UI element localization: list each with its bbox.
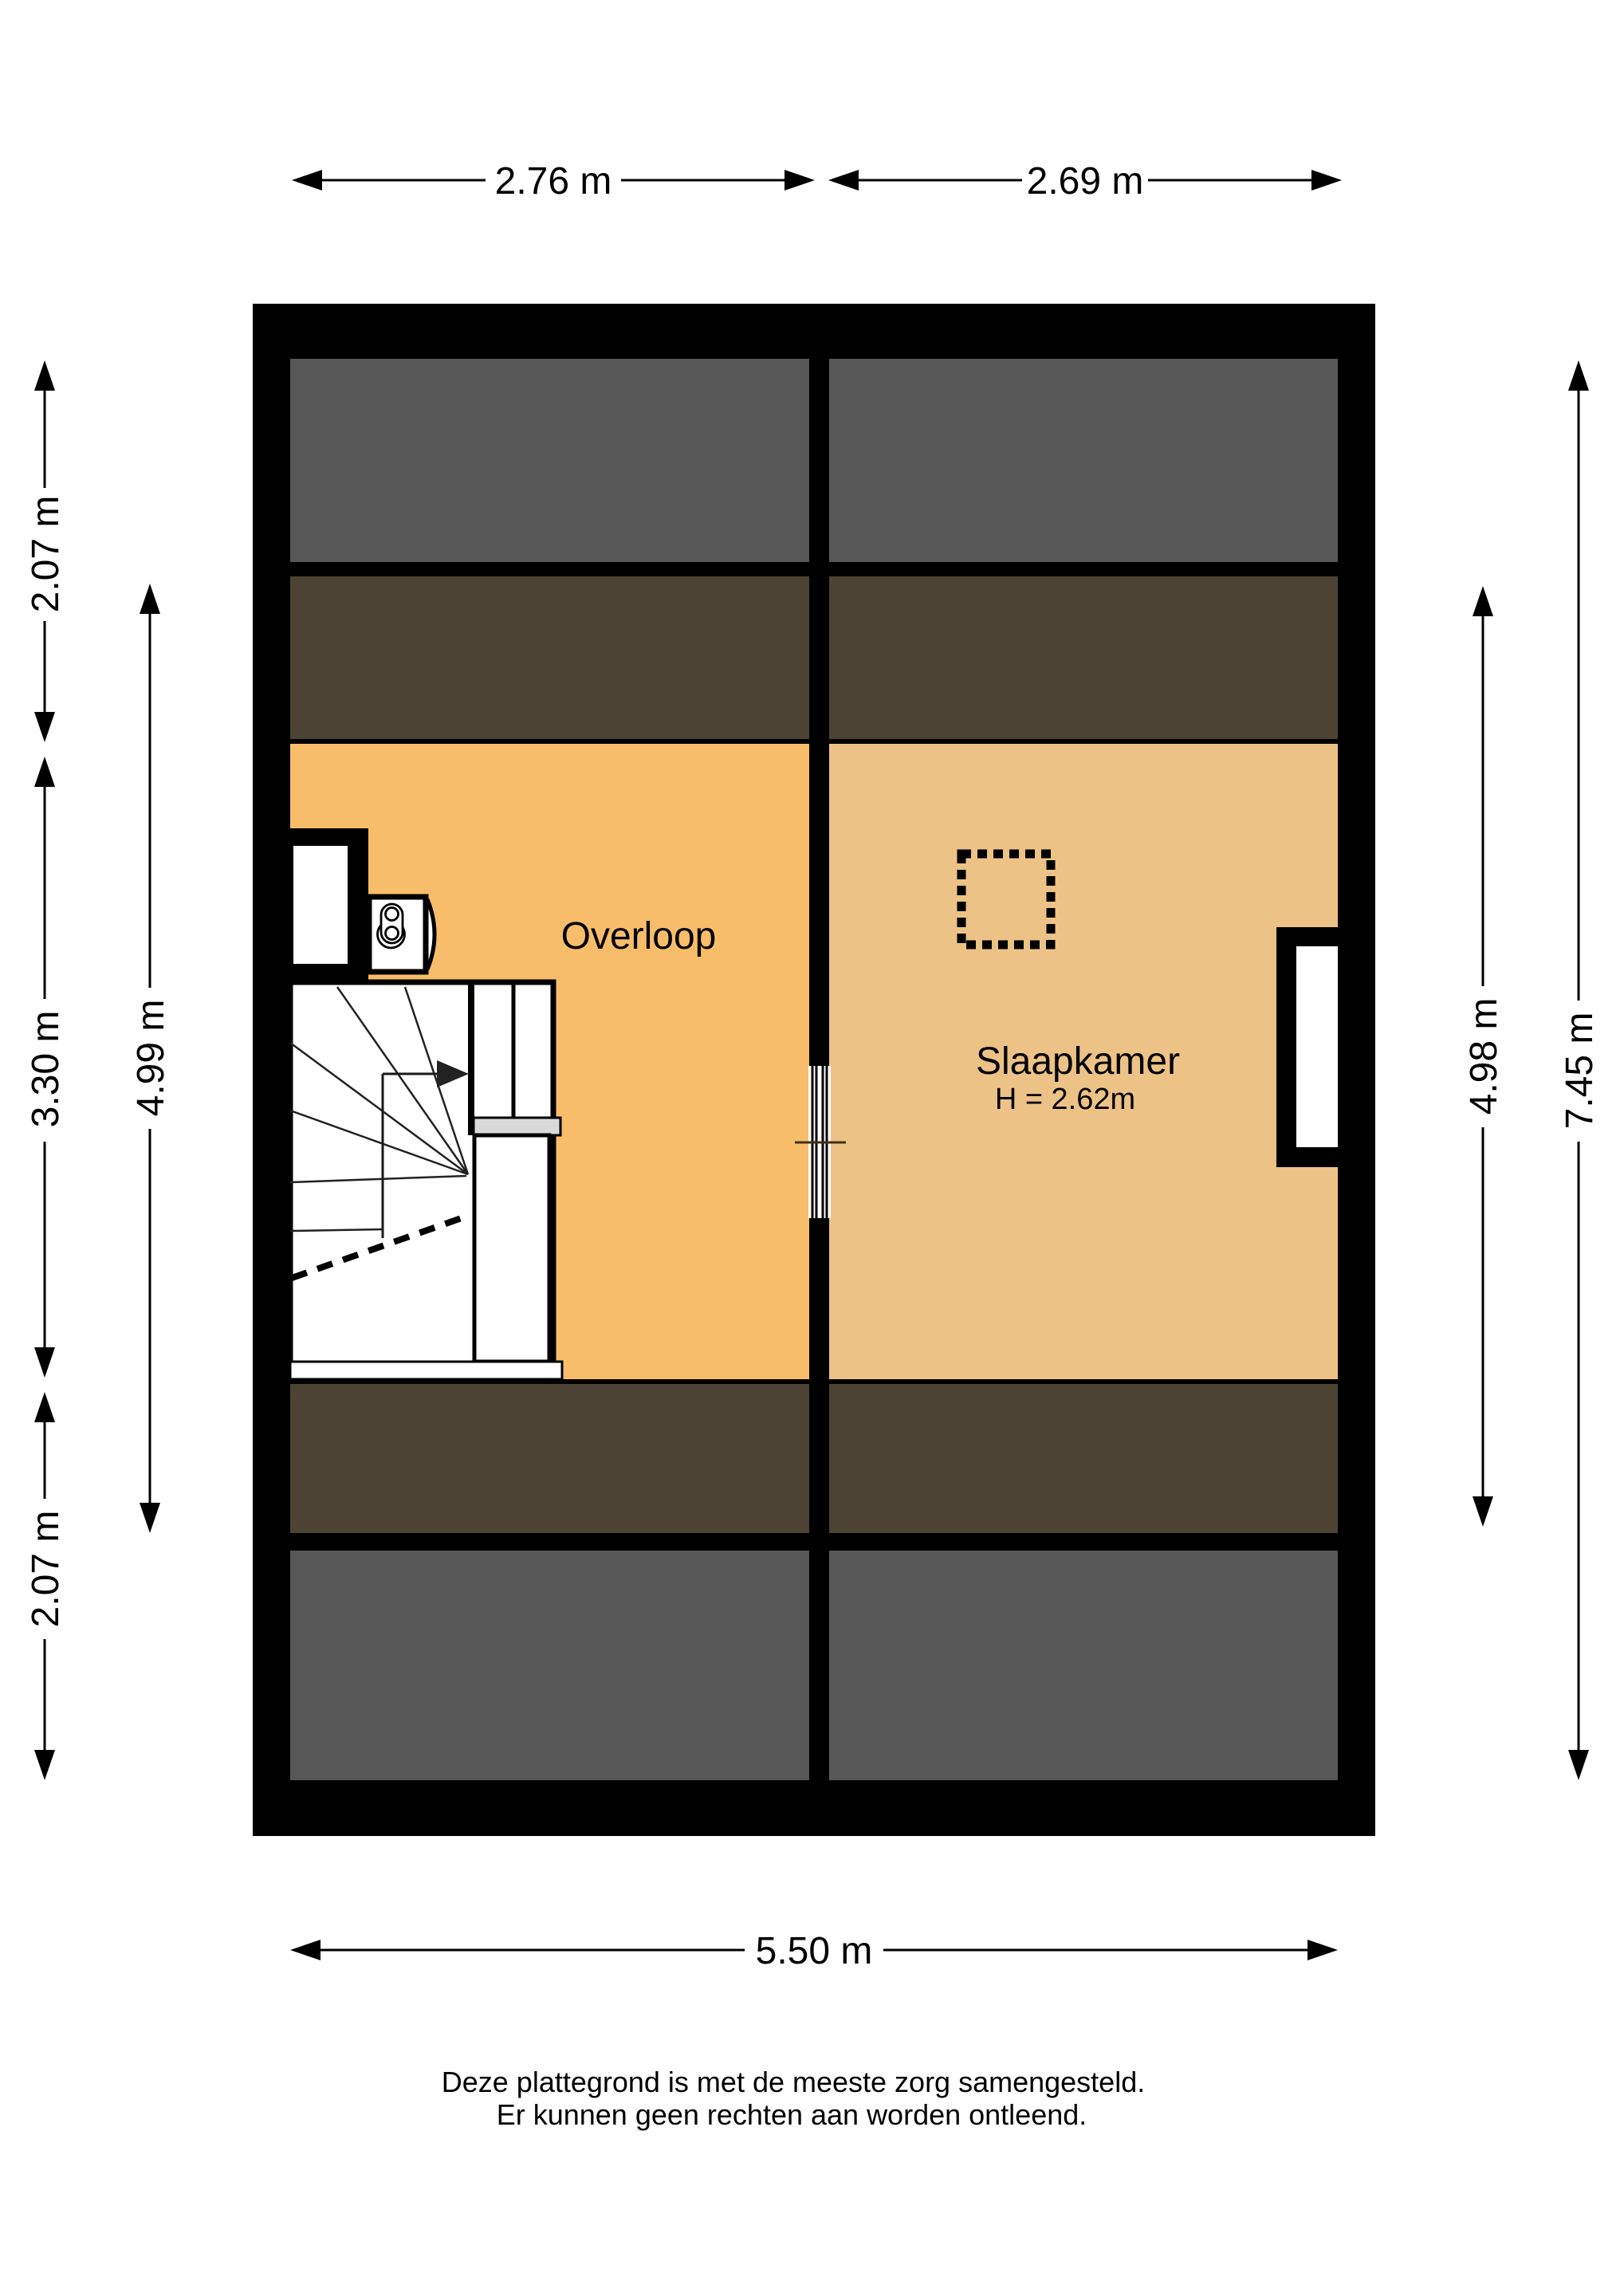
svg-text:Slaapkamer: Slaapkamer <box>976 1040 1180 1083</box>
svg-text:2.07 m: 2.07 m <box>25 1511 67 1628</box>
svg-text:Deze plattegrond is met de mee: Deze plattegrond is met de meeste zorg s… <box>442 2066 1145 2098</box>
svg-text:4.98 m: 4.98 m <box>1463 998 1505 1115</box>
svg-text:Er kunnen geen rechten aan wor: Er kunnen geen rechten aan worden ontlee… <box>497 2098 1087 2131</box>
svg-text:7.45 m: 7.45 m <box>1559 1012 1601 1130</box>
svg-text:H = 2.62m: H = 2.62m <box>995 1083 1135 1116</box>
svg-text:5.50 m: 5.50 m <box>756 1930 873 1972</box>
svg-text:2.07 m: 2.07 m <box>25 496 67 613</box>
svg-text:3.30 m: 3.30 m <box>25 1011 67 1128</box>
svg-text:2.76 m: 2.76 m <box>495 160 612 202</box>
svg-text:4.99 m: 4.99 m <box>130 1000 172 1117</box>
svg-text:Overloop: Overloop <box>561 915 717 957</box>
svg-text:2.69 m: 2.69 m <box>1027 160 1144 202</box>
